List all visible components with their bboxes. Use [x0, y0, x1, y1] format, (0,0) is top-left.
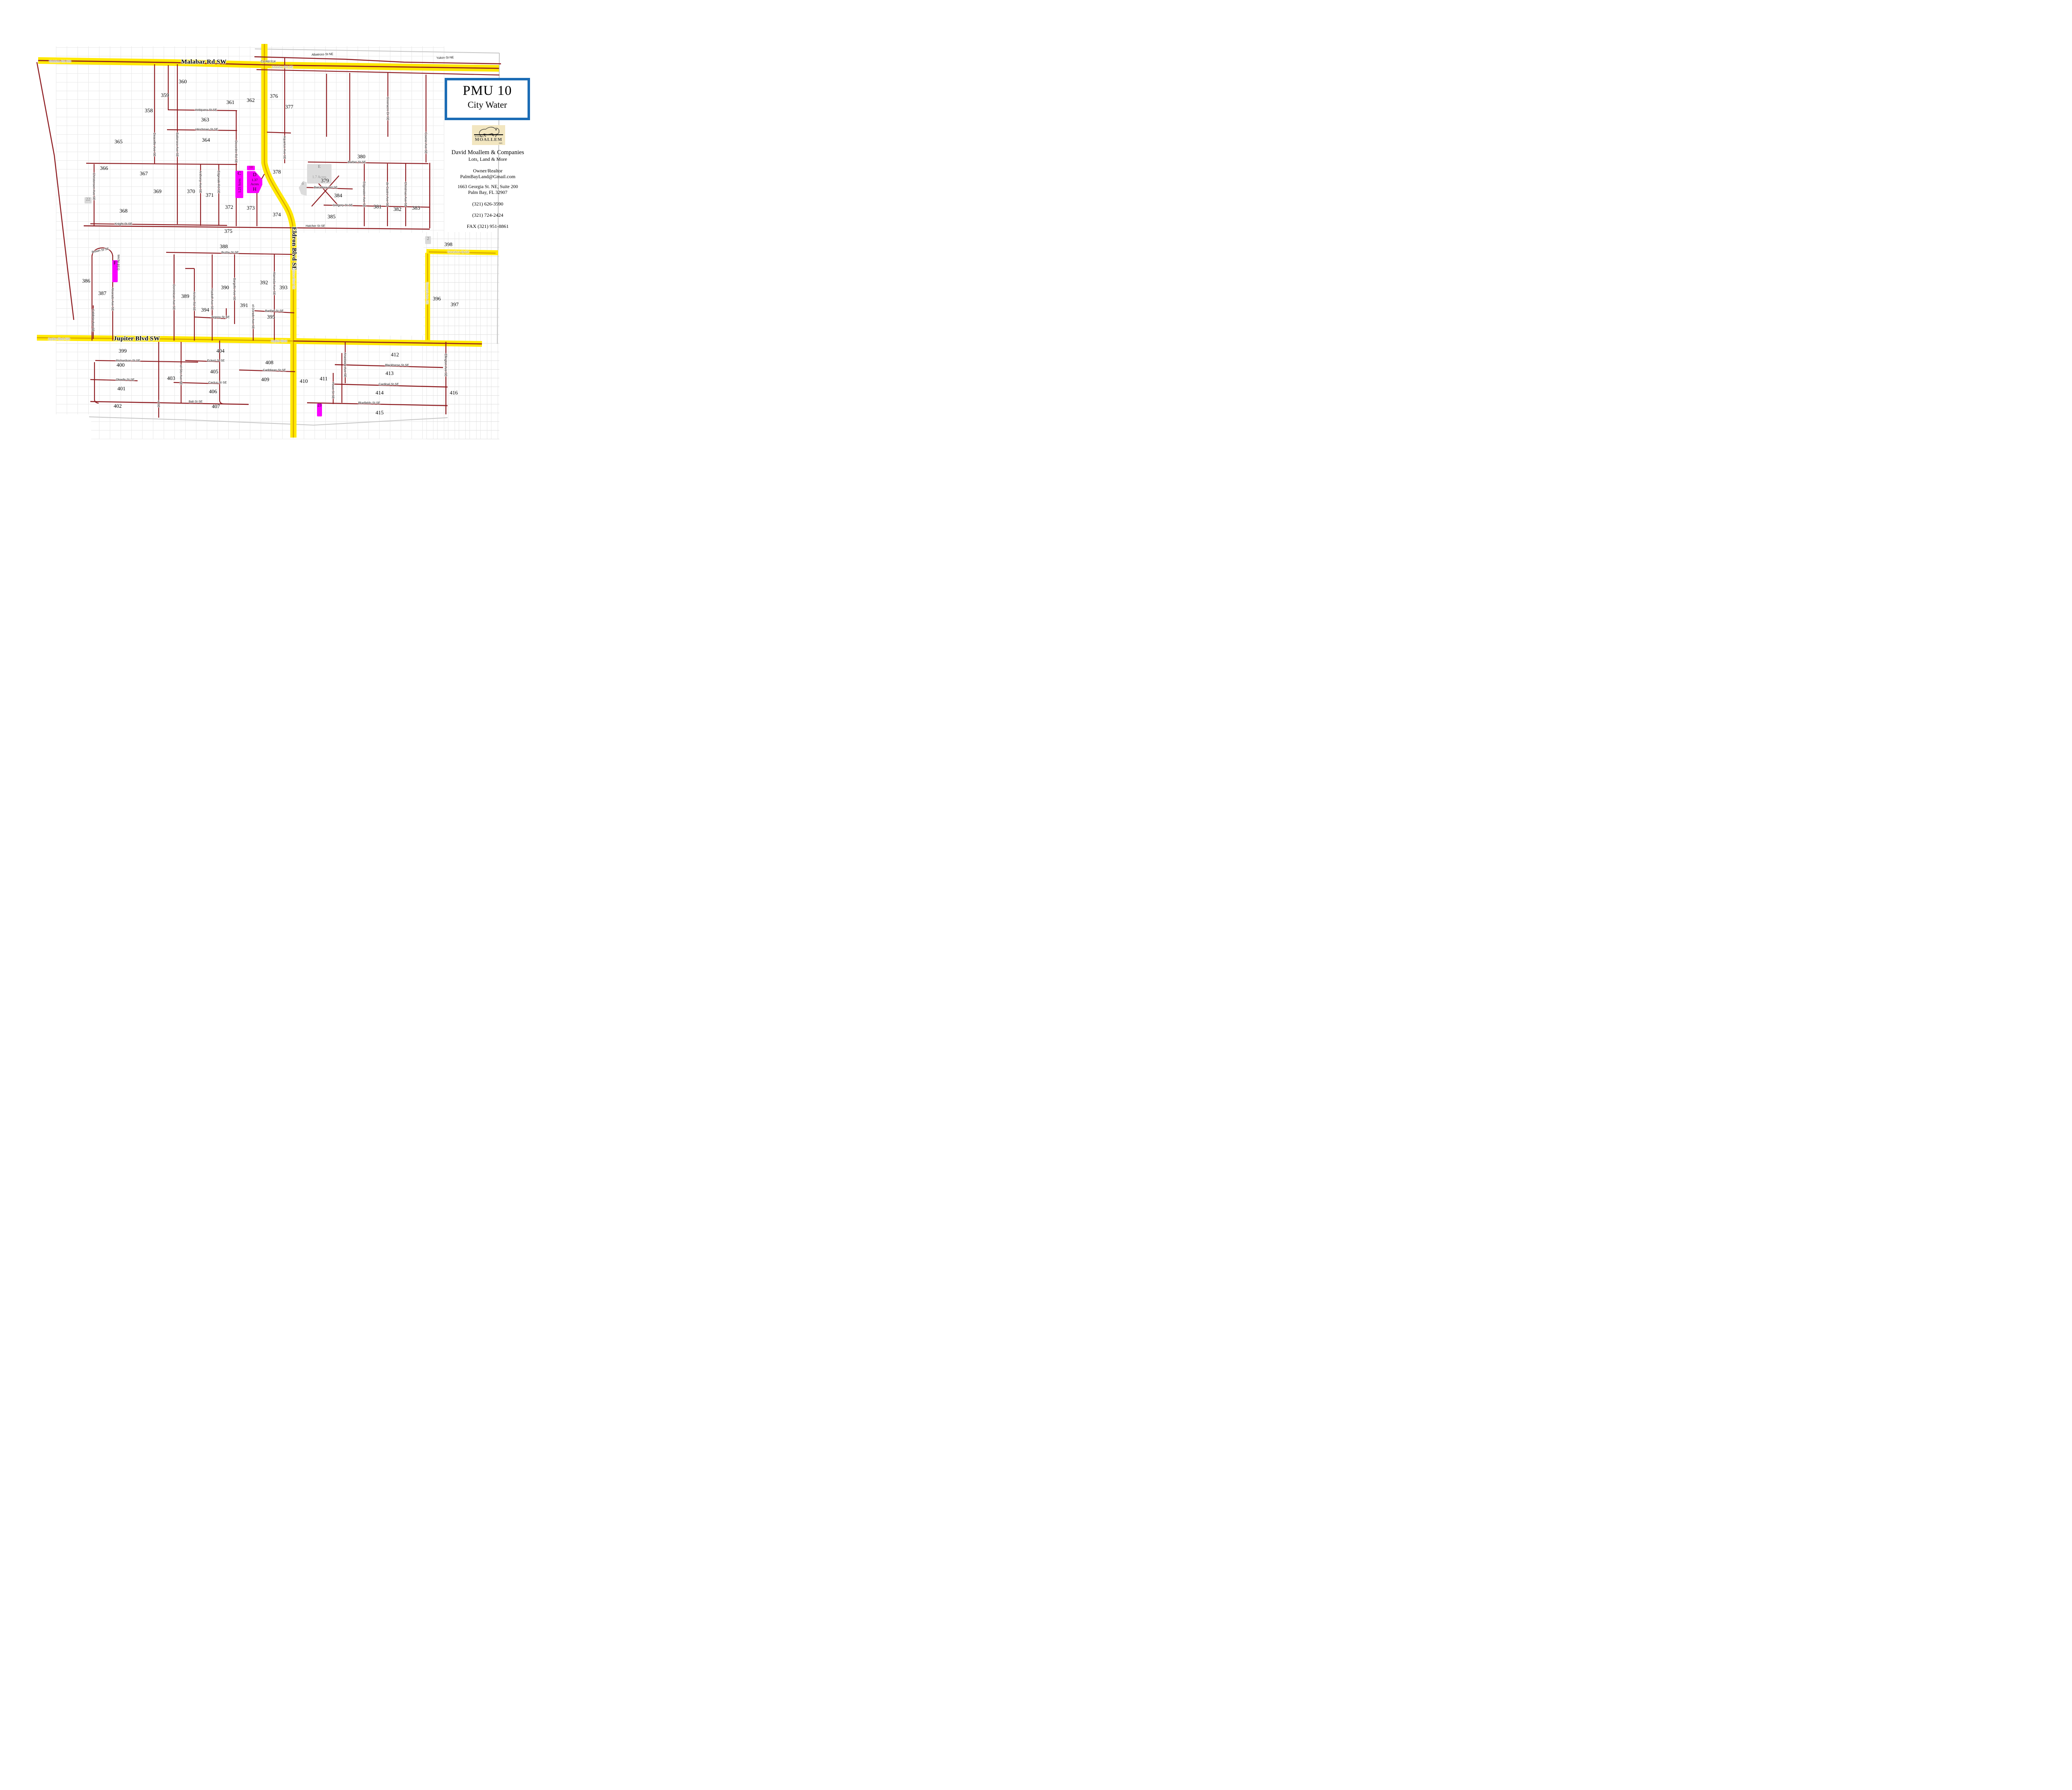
street-label-brevard-ave-se: Brevard·Ave·SE	[426, 283, 429, 305]
block-number-375: 375	[224, 228, 232, 235]
street-label-decordre-rd-se: Decordre·Rd·SE	[235, 140, 238, 163]
parcel-22: 22	[85, 197, 92, 203]
street-label-aquarius-ave-se: Aquarius·Ave·SE	[283, 136, 287, 159]
block-number-383: 383	[412, 205, 420, 211]
block-number-389: 389	[181, 293, 189, 300]
street-label-buzby-st-se: Buzby·St·SE	[221, 251, 239, 254]
block-number-415: 415	[375, 409, 384, 416]
block-number-386: 386	[82, 278, 90, 284]
street-label-cownie-ave-se: Cownie·Ave·SE	[424, 132, 428, 154]
street-label-yukon-st-ne: Yukon·St·NE	[436, 56, 454, 60]
street-label-battersea-ave-se: Battersea·Ave·SE	[176, 133, 179, 157]
page-subtitle: City Water	[447, 99, 528, 110]
street-label-el-dorado-ave-se: el·Dorado·Ave·SE	[252, 304, 255, 329]
parcel-F-label: F	[114, 260, 116, 266]
street-label-howe-st-se: Howe·St·SE	[332, 382, 335, 399]
block-number-392: 392	[260, 279, 268, 286]
block-number-396: 396	[433, 295, 441, 302]
street-label-bali-st-se: Bali·St·SE	[189, 400, 203, 404]
block-number-408: 408	[265, 359, 274, 366]
company-tagline: Lots, Land & More	[444, 156, 531, 162]
contact-email: PalmBayLand@Gmail.com	[444, 174, 531, 180]
street-label-hinchman-st-se: Hinchman·St·SE	[196, 128, 218, 131]
parcel-23: 23	[317, 404, 322, 416]
street-label-ellington-ave-se: Ellington·Ave·SE	[444, 354, 448, 377]
street-label-haskell-ave-se: Haskell·Ave·SE	[211, 289, 214, 310]
block-number-391: 391	[240, 302, 248, 309]
street-label-el-sito-ave-se: el·Sito·Ave·SE	[179, 365, 183, 385]
block-number-394: 394	[201, 307, 209, 313]
street-label-jupiter-blvd: Jupiter·Blvd	[271, 339, 287, 343]
block-number-401: 401	[117, 385, 126, 392]
street-label-greenacre-dr-se: Greenacre·Dr·SE	[386, 97, 390, 121]
street-label-cactus-st-se: Cactus·St·SE	[208, 381, 227, 385]
company-name: David Moallem & Companies	[444, 149, 531, 156]
block-number-378: 378	[273, 169, 281, 175]
parcel-22-label: 22	[86, 197, 90, 202]
street-label-argosy-st-se: Argosy·St·SE	[211, 315, 230, 319]
parcel-2: 2	[425, 236, 431, 244]
street-label-bargello-ave-se: Bargello·Ave·SE	[233, 278, 237, 300]
block-number-382: 382	[393, 206, 402, 213]
block-number-361: 361	[226, 99, 235, 106]
block-number-367: 367	[140, 170, 148, 177]
phone-secondary: (321) 724-2424	[444, 212, 531, 218]
block-number-400: 400	[116, 362, 125, 368]
block-number-362: 362	[247, 97, 255, 104]
street-label-edgewater-ave-se: Edgewater·Ave·SE	[363, 181, 366, 207]
street-label-barber-st-se: Barber·St·SE	[348, 160, 366, 164]
block-number-370: 370	[187, 188, 195, 195]
street-label-christmas-ave-se: Christmas·Ave·SE	[404, 182, 408, 207]
block-number-366: 366	[100, 165, 108, 172]
street-label-malabar-rd-sw: Malabar Rd SW	[181, 59, 226, 66]
parcel-F-acres: 0.59 Acres	[117, 254, 121, 270]
block-number-393: 393	[279, 284, 288, 291]
block-number-381: 381	[373, 203, 382, 210]
street-label-gregory-st-se: Gregory·St·SE	[333, 203, 353, 207]
street-label-blackhorse-st-se: Blackhorse·St·SE	[385, 363, 409, 367]
street-label-alameda-ave-se: Alameda·Ave·SE	[273, 272, 276, 295]
street-label-antiquera-st-se: Antiquera·St·SE	[195, 108, 217, 112]
block-number-416: 416	[450, 389, 458, 396]
fax-number: FAX (321) 951-8861	[444, 223, 531, 230]
parcel-C-label: C	[237, 171, 241, 176]
block-number-390: 390	[221, 284, 229, 291]
block-number-363: 363	[201, 116, 209, 123]
block-number-405: 405	[210, 368, 218, 375]
street-label-albatross-st-ne: Albatross·St·NE	[312, 52, 334, 57]
block-number-360: 360	[179, 78, 187, 85]
block-number-372: 372	[225, 204, 233, 210]
block-number-365: 365	[114, 138, 123, 145]
block-number-410: 410	[300, 378, 308, 385]
block-number-413: 413	[385, 370, 394, 377]
title-box: PMU 10 City Water	[445, 78, 530, 120]
block-number-374: 374	[273, 211, 281, 218]
parcel-D-H-label: D1.37AcresH	[251, 172, 259, 192]
street-label-calabria-ave-se: Calabria·Ave·SE	[92, 309, 95, 331]
street-label-co-rd-514: Co·Rd·514	[261, 60, 276, 63]
logo-name-text: MOALLEM	[474, 137, 503, 142]
address-line2: Palm Bay, FL 32907	[444, 190, 531, 195]
block-number-358: 358	[145, 107, 153, 114]
block-number-406: 406	[209, 388, 217, 395]
street-label-jupiter-blvd-sw: Jupiter Blvd SW	[114, 336, 160, 343]
street-label-jupiter-blvd-sw: Jupiter·Blvd·SW	[48, 337, 70, 341]
block-number-399: 399	[119, 348, 127, 354]
street-label-bluefields-st-se: Bluefields·St·SE	[358, 401, 380, 405]
street-label-anastasia-ave-se: Anastasia·Ave·SE	[344, 353, 347, 377]
logo-inc-text: INC	[499, 142, 503, 144]
block-number-379: 379	[321, 177, 329, 184]
block-number-359: 359	[161, 92, 169, 99]
parcel-C-acres: 1.21 Acres	[237, 179, 241, 193]
parcel-23-label: 23	[317, 404, 322, 408]
block-number-414: 414	[375, 389, 384, 396]
street-label-christensen-ave-se: Christensen·Ave·SE	[92, 173, 96, 200]
page-title: PMU 10	[447, 83, 528, 99]
parcel-F: F0.59 Acres	[112, 260, 118, 282]
block-number-402: 402	[114, 403, 122, 409]
parcel-10: 10	[247, 166, 255, 170]
plat-map-page: C1.21 Acres10D1.37AcresHE1.7 Acres6F0.59…	[0, 0, 597, 447]
street-label-barthel-st-se: Barthel·St·SE	[265, 309, 284, 313]
street-label-anthony-ave-se: Anthony·Ave·SE	[199, 171, 203, 193]
block-number-376: 376	[270, 93, 278, 99]
street-label-caribbean-st-se: Caribbean·St·SE	[263, 368, 286, 372]
block-number-407: 407	[212, 403, 220, 410]
block-number-373: 373	[247, 205, 255, 211]
parcel-E-label: E	[318, 164, 321, 169]
block-number-364: 364	[202, 137, 210, 143]
parcel-10-label: 10	[249, 165, 253, 169]
street-label-dominican-ave-se: Dominican·Ave·SE	[172, 284, 176, 310]
street-label-grandeur-st-se: Grandeur·St·SE	[448, 250, 469, 254]
street-label-okeefe-st-se: Okeefe·St·SE	[116, 378, 134, 382]
street-label-edgevale-rd-se: Edgevale·Rd·SE	[217, 171, 221, 193]
parcel-C: C1.21 Acres	[235, 171, 243, 198]
street-label-alvarado-ave-se: Alvarado·Ave·SE	[111, 288, 115, 311]
block-number-411: 411	[320, 375, 327, 382]
block-number-412: 412	[391, 351, 399, 358]
street-label-richardson-st-se: Richardson·St·SE	[116, 359, 140, 363]
address-line1: 1663 Georgia St. NE, Suite 200	[444, 184, 531, 189]
street-label-malabar-rd-sw: Malabar·Rd·SW	[49, 60, 71, 63]
block-number-397: 397	[450, 301, 459, 308]
block-number-395: 395	[267, 314, 275, 320]
block-number-403: 403	[167, 375, 175, 382]
block-number-409: 409	[261, 376, 269, 383]
block-number-387: 387	[98, 290, 107, 297]
block-number-380: 380	[357, 153, 366, 160]
parcel-2-label: 2	[427, 236, 429, 241]
block-number-398: 398	[444, 241, 453, 248]
block-number-368: 368	[119, 208, 128, 214]
block-number-371: 371	[206, 192, 214, 198]
block-number-404: 404	[216, 348, 225, 354]
block-number-388: 388	[220, 243, 228, 250]
block-number-385: 385	[327, 213, 336, 220]
street-label-malabar-rd-se: Malabar·Rd·SE	[272, 65, 293, 69]
street-label-de-castro-ave-se: de·Castro·Ave·SE	[386, 182, 390, 206]
street-label-eldron-blvd-se: Eldron Blvd SE	[290, 227, 298, 271]
street-label-archer-rd-se: Archer·Rd·SE	[193, 292, 196, 310]
street-label-barcelona-rd-se: Barcelona·Rd·SE	[314, 186, 338, 189]
street-label-eckert-st-se: Eckert·St·SE	[207, 359, 225, 363]
street-label-cardinal-st-se: Cardinal·St·SE	[379, 382, 399, 386]
street-label-hatcher-st-se: Hatcher·St·SE	[305, 224, 325, 228]
block-number-369: 369	[153, 188, 162, 195]
phone-primary: (321) 626-3590	[444, 201, 531, 207]
block-number-377: 377	[285, 104, 293, 110]
moallem-logo: M DAVID MOALLEM INC	[472, 125, 505, 145]
street-label-deauville-ave-se: Deauville·Ave·SE	[153, 133, 157, 156]
block-number-384: 384	[334, 192, 342, 199]
street-label-knight-st-se: Knight·St·SE	[115, 222, 132, 226]
street-label-e-se: e·SE	[157, 401, 161, 407]
street-label-eldron-blvd-se: Eldron·Blvd·SE	[292, 268, 296, 289]
owner-role: Owner/Realtor	[444, 168, 531, 174]
